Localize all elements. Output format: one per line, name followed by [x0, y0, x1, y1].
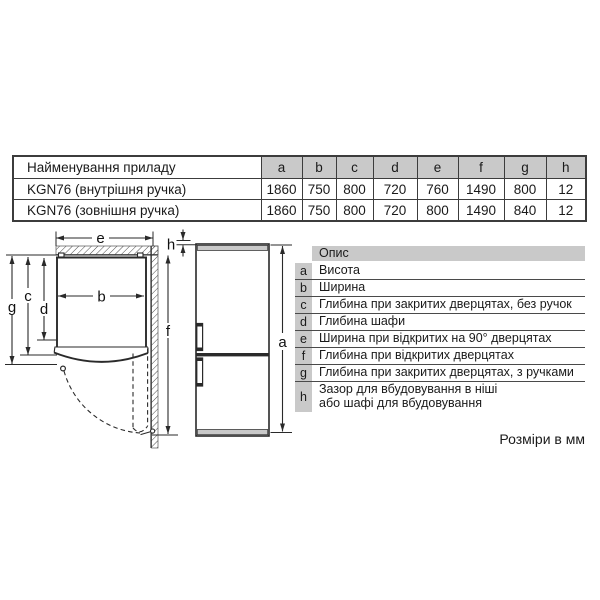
fridge-front-view	[196, 244, 269, 436]
model-name: KGN76 (внутрішня ручка)	[13, 179, 261, 200]
value-cell: 800	[417, 200, 458, 222]
value-cell: 800	[504, 179, 546, 200]
value-cell: 720	[373, 200, 417, 222]
table-row: KGN76 (зовнішня ручка) 1860 750 800 720 …	[13, 200, 586, 222]
legend-key: a	[295, 263, 312, 279]
fridge-top-cap	[197, 245, 267, 250]
legend-row-e: e Ширина при відкритих на 90° дверцятах	[295, 331, 585, 348]
dim-e: e	[56, 230, 153, 247]
legend-header-row: Опис	[295, 246, 585, 261]
handle-knob	[61, 366, 66, 371]
value-cell: 12	[546, 200, 586, 222]
value-cell: 760	[417, 179, 458, 200]
dim-label-h: h	[167, 237, 175, 254]
legend-key: g	[295, 365, 312, 381]
legend-row-h: h Зазор для вбудовування в ніші або шафі…	[295, 382, 585, 412]
legend-header: Опис	[312, 246, 585, 261]
door-divider	[196, 353, 269, 356]
value-cell: 750	[302, 200, 336, 222]
value-cell: 1490	[458, 200, 504, 222]
spec-name-header: Найменування приладу	[13, 156, 261, 179]
dimension-diagram: e b c d g	[0, 220, 300, 465]
legend-row-g: g Глибина при закритих дверцятах, з ручк…	[295, 365, 585, 382]
legend-table: Опис a Висота b Ширина c Глибина при зак…	[295, 246, 585, 412]
legend-row-c: c Глибина при закритих дверцятах, без ру…	[295, 297, 585, 314]
legend-key: c	[295, 297, 312, 313]
legend-desc: Ширина	[312, 281, 585, 295]
table-row: KGN76 (внутрішня ручка) 1860 750 800 720…	[13, 179, 586, 200]
legend-desc: Глибина при закритих дверцятах, з ручкам…	[312, 366, 585, 380]
spec-table: Найменування приладу a b c d e f g h KGN…	[12, 155, 587, 222]
value-cell: 840	[504, 200, 546, 222]
upper-door-handle	[197, 324, 203, 351]
value-cell: 800	[336, 200, 373, 222]
legend-desc: Висота	[312, 264, 585, 278]
legend-row-f: f Глибина при відкритих дверцятах	[295, 348, 585, 365]
wall-right	[151, 246, 158, 448]
lower-door-handle	[197, 358, 203, 386]
fridge-plinth	[197, 430, 267, 435]
dim-label-e: e	[96, 230, 104, 247]
value-cell: 750	[302, 179, 336, 200]
units-note: Розміри в мм	[385, 431, 585, 447]
dim-label-a: a	[278, 334, 287, 351]
value-cell: 1860	[261, 200, 302, 222]
hinge-bump-right	[138, 253, 144, 257]
legend-desc: Глибина при закритих дверцятах, без ручо…	[312, 298, 585, 312]
spec-header-row: Найменування приладу a b c d e f g h	[13, 156, 586, 179]
value-cell: 720	[373, 179, 417, 200]
spec-col-g: g	[504, 156, 546, 179]
spec-col-e: e	[417, 156, 458, 179]
dim-label-d: d	[40, 301, 48, 318]
dim-g: g	[5, 256, 57, 365]
legend-desc: Зазор для вбудовування в ніші або шафі д…	[312, 382, 585, 412]
value-cell: 1490	[458, 179, 504, 200]
spec-col-c: c	[336, 156, 373, 179]
spec-col-h: h	[546, 156, 586, 179]
page: Найменування приладу a b c d e f g h KGN…	[0, 0, 600, 600]
dim-label-g: g	[8, 299, 16, 316]
legend-key: e	[295, 331, 312, 347]
model-name: KGN76 (зовнішня ручка)	[13, 200, 261, 222]
spec-col-d: d	[373, 156, 417, 179]
legend-desc: Глибина шафи	[312, 315, 585, 329]
dim-label-b: b	[97, 289, 105, 306]
door-front-curve	[54, 353, 148, 362]
legend-key-header	[295, 246, 312, 261]
spec-col-a: a	[261, 156, 302, 179]
fridge-top-view	[54, 253, 148, 362]
legend-row-d: d Глибина шафи	[295, 314, 585, 331]
legend-desc: Глибина при відкритих дверцятах	[312, 349, 585, 363]
spec-col-f: f	[458, 156, 504, 179]
dim-a: a	[271, 245, 293, 433]
value-cell: 800	[336, 179, 373, 200]
value-cell: 1860	[261, 179, 302, 200]
dim-label-f: f	[166, 323, 171, 340]
legend-row-b: b Ширина	[295, 280, 585, 297]
legend-key: f	[295, 348, 312, 364]
dim-d: d	[37, 258, 57, 340]
dim-h: h	[167, 230, 196, 257]
legend-row-a: a Висота	[295, 263, 585, 280]
door-swing-arc	[64, 371, 140, 433]
wall-touch-point	[151, 429, 155, 433]
wall-top	[6, 246, 158, 255]
legend-desc: Ширина при відкритих на 90° дверцятах	[312, 332, 585, 346]
legend-key: h	[295, 382, 312, 412]
hinge-bump-left	[59, 253, 65, 257]
spec-col-b: b	[302, 156, 336, 179]
value-cell: 12	[546, 179, 586, 200]
dim-label-c: c	[24, 288, 32, 305]
legend-key: b	[295, 280, 312, 296]
legend-key: d	[295, 314, 312, 330]
